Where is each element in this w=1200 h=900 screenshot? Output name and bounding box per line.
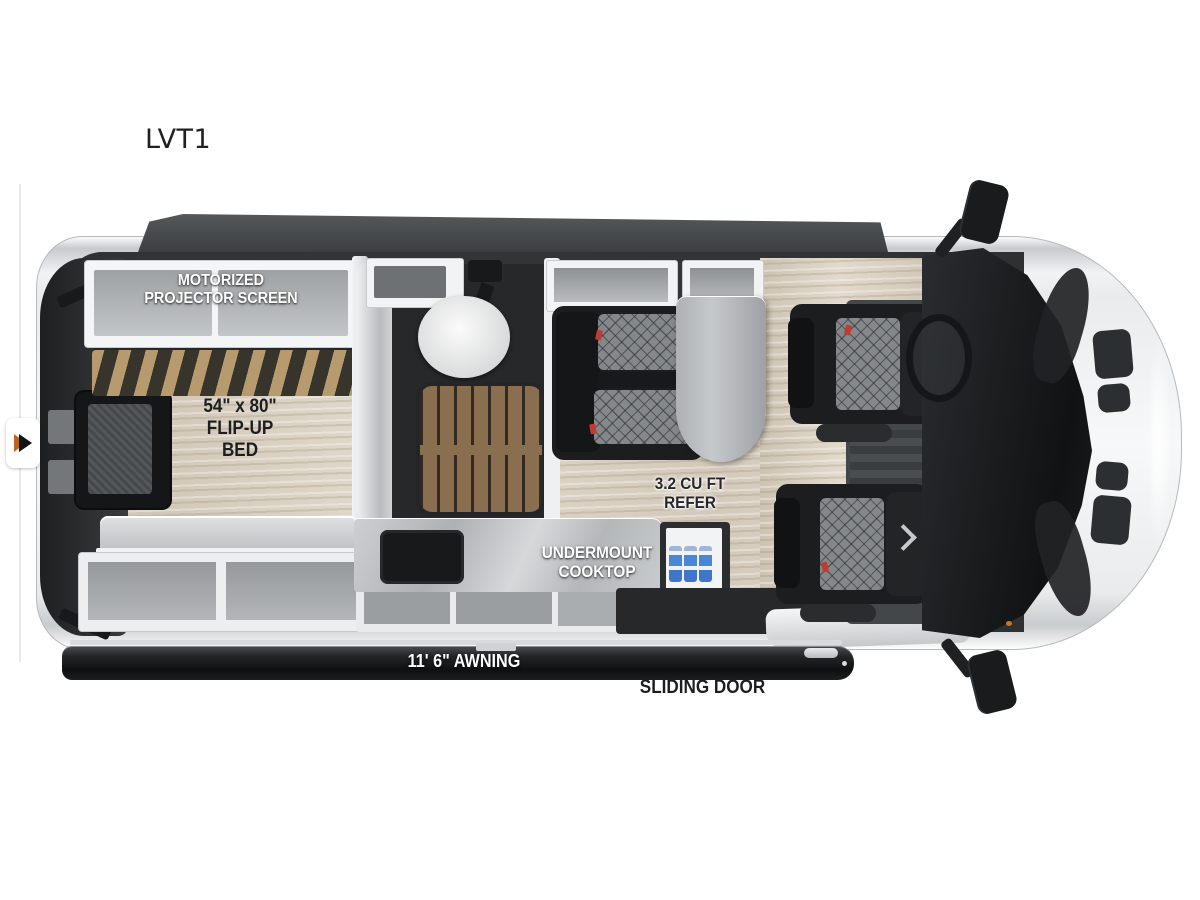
undermount-cooktop-label: UNDERMOUNT COOKTOP	[530, 543, 665, 582]
bed-label-line1: 54" x 80"	[173, 396, 308, 418]
passenger-seat-cushion	[820, 498, 884, 590]
awning-end-cap	[804, 648, 838, 658]
driver-seat-headrest	[788, 318, 814, 408]
water-bottle-3	[699, 546, 712, 582]
shower-grate-gap	[420, 445, 542, 455]
refer-label-line1: 3.2 CU FT	[636, 474, 744, 493]
bed-label-line2: FLIP-UP	[173, 418, 308, 440]
bath-fixture	[468, 260, 502, 282]
awning-center-bracket	[476, 643, 516, 651]
cooktop-label-line1: UNDERMOUNT	[530, 543, 665, 562]
galley-shelf-compartment-2	[456, 592, 552, 624]
roof-awning-strip	[138, 214, 888, 252]
toilet	[418, 296, 510, 378]
right-arrow-icon	[19, 434, 32, 452]
steering-wheel	[906, 314, 972, 402]
galley-shelf-compartment-1	[364, 592, 450, 624]
bath-cabinet-panel	[374, 266, 446, 298]
image-nav-arrow-button[interactable]	[6, 418, 40, 468]
floorplan-model-title: LVT1	[145, 124, 211, 155]
water-bottle-2	[684, 546, 697, 582]
cooktop-label-line2: COOKTOP	[530, 562, 665, 581]
rear-tv-screen	[88, 404, 152, 494]
awning-label: 11' 6" AWNING	[370, 651, 559, 672]
floorplan-page: LVT1 MOTORIZED PROJECTOR SCREEN 54" x 80…	[0, 0, 1200, 900]
front-marker-light	[1006, 621, 1012, 626]
projector-label-line1: MOTORIZED	[98, 272, 345, 290]
flip-up-bed-label: 54" x 80" FLIP-UP BED	[173, 396, 308, 462]
front-bumper-highlight	[1118, 292, 1176, 592]
refer-label-line2: REFER	[636, 493, 744, 512]
refer-label: 3.2 CU FT REFER	[636, 474, 744, 513]
awning-rail-highlight	[70, 640, 842, 645]
projector-screen-label: MOTORIZED PROJECTOR SCREEN	[98, 272, 345, 308]
water-bottle-1	[669, 546, 682, 582]
dinette-cabinet-panel-left	[554, 268, 668, 302]
awning-end-dot	[842, 661, 847, 666]
projector-label-line2: PROJECTOR SCREEN	[98, 290, 345, 308]
galley-sink	[380, 530, 464, 584]
bed-label-line3: BED	[173, 440, 308, 462]
dinette-table	[676, 296, 766, 462]
side-mirror-bottom	[965, 648, 1018, 716]
flip-up-bed-slats	[92, 350, 354, 396]
passenger-seat-headrest	[774, 498, 800, 588]
passenger-seat-armrest	[800, 604, 876, 622]
storage-compartment-left	[88, 562, 216, 620]
driver-seat-armrest	[816, 424, 892, 442]
sliding-door-label: SLIDING DOOR	[633, 677, 773, 699]
shower-teak-grate	[416, 382, 546, 516]
storage-compartment-right	[226, 562, 356, 620]
